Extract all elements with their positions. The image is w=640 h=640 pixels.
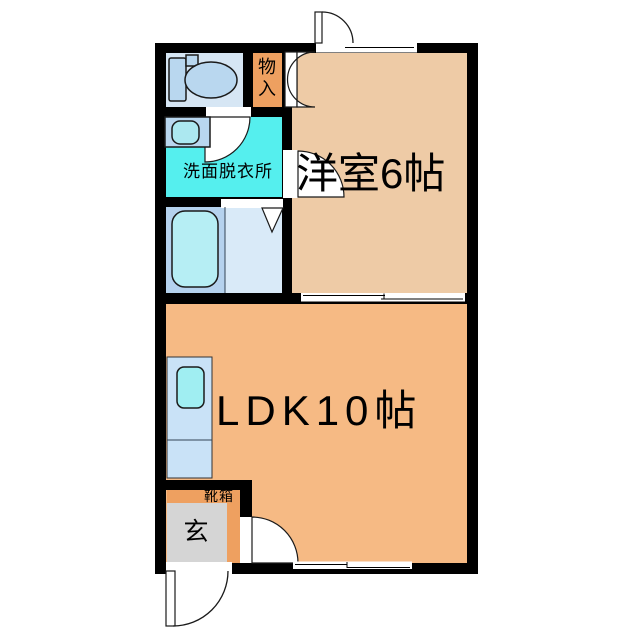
- sliding-door-band: [301, 293, 465, 302]
- toilet-closet-wall: [243, 43, 253, 117]
- storage-label-bottom-char: 入: [258, 79, 276, 99]
- bath-doorway: [221, 199, 283, 208]
- floor-plan: 洋室6帖 LDK10帖 洗面脱衣所 物 入 玄 靴箱: [0, 0, 640, 640]
- shoe-box-side: [227, 503, 240, 563]
- bathtub-icon: [172, 211, 218, 287]
- balcony-door-leaf: [315, 12, 322, 43]
- ldk-label: LDK10帖: [216, 387, 422, 434]
- outer-wall-right: [467, 43, 478, 574]
- front-door-leaf: [166, 571, 175, 626]
- kitchen-sink-icon: [177, 367, 204, 408]
- storage-label-top-char: 物: [258, 57, 276, 77]
- toilet-doorway: [206, 107, 251, 117]
- front-doorway: [166, 562, 232, 574]
- entrance-label: 玄: [183, 518, 208, 546]
- toilet-bowl-icon: [185, 62, 237, 98]
- balcony-door-swing-arc: [322, 12, 353, 43]
- western-room-label: 洋室6帖: [296, 150, 445, 197]
- toilet-tank-icon: [169, 58, 186, 101]
- washbasin-bowl-icon: [172, 121, 199, 144]
- washroom-label: 洗面脱衣所: [183, 162, 273, 181]
- shoe-box-label: 靴箱: [204, 488, 234, 504]
- front-door-swing-arc: [173, 571, 228, 626]
- floor-plan-svg: 洋室6帖 LDK10帖 洗面脱衣所 物 入 玄 靴箱: [0, 0, 640, 640]
- entrance-doorway: [240, 517, 252, 563]
